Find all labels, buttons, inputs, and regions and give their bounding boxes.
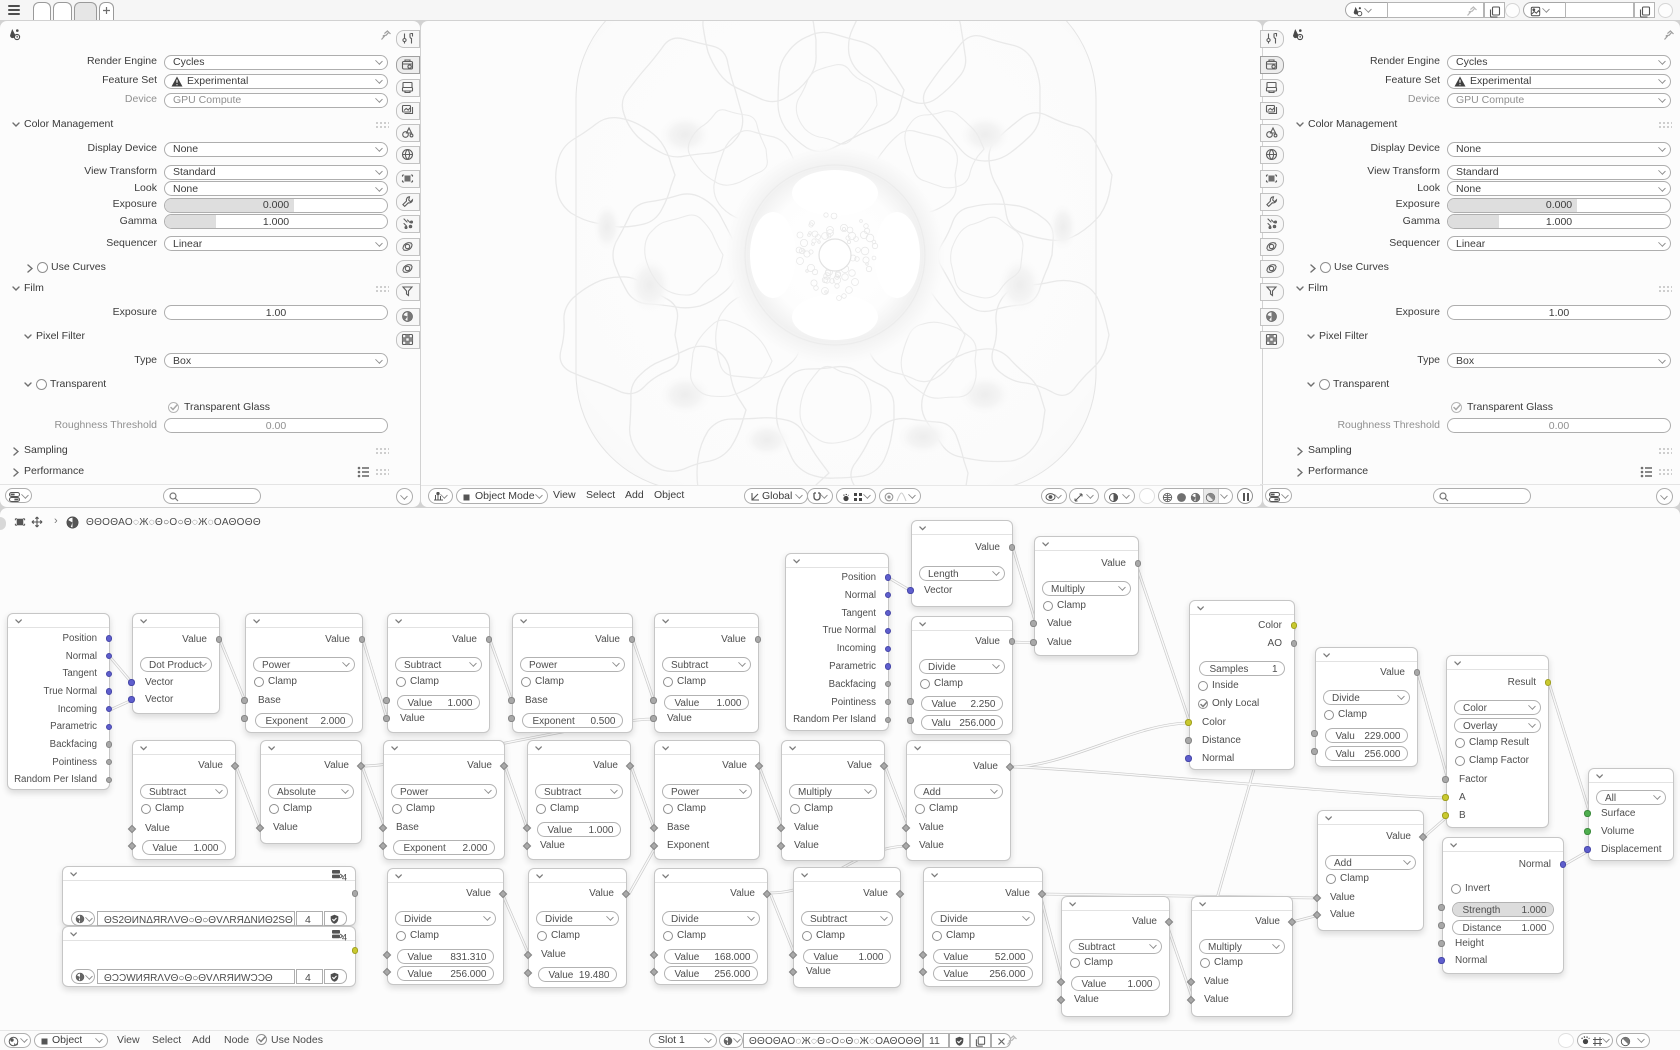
svg-text:4: 4 xyxy=(342,873,347,882)
svg-text:4: 4 xyxy=(342,933,347,942)
